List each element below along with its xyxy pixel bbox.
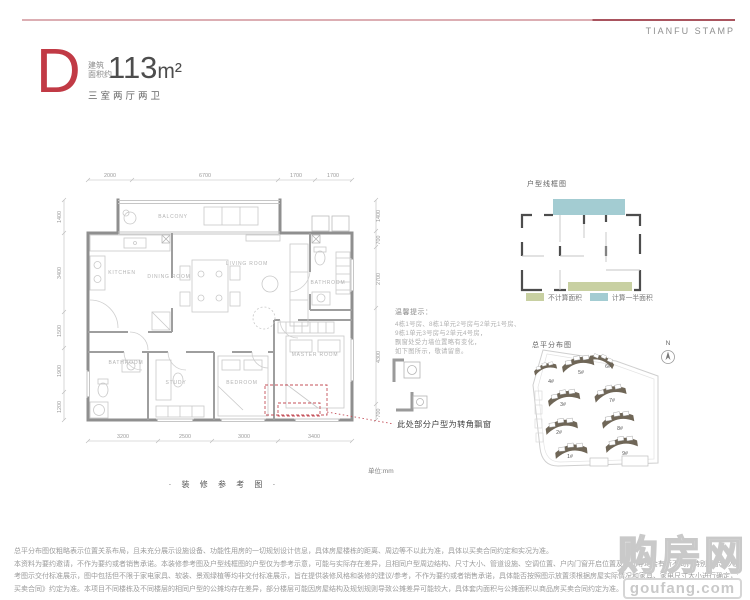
- legend-swatch-teal: [590, 293, 608, 301]
- svg-text:3#: 3#: [560, 402, 566, 408]
- svg-text:3400: 3400: [57, 267, 63, 279]
- layout-desc: 三室两厅两卫: [88, 88, 163, 102]
- svg-text:6#: 6#: [605, 364, 611, 370]
- tips-title: 温馨提示：: [395, 307, 433, 316]
- svg-text:700: 700: [376, 236, 382, 245]
- svg-text:1400: 1400: [376, 210, 382, 222]
- half-area-balcony: [553, 199, 625, 215]
- svg-text:700: 700: [376, 409, 382, 418]
- svg-text:5#: 5#: [578, 370, 584, 376]
- tips-line-2: 9栋1单元3号房与2单元4号房，: [395, 328, 487, 337]
- brand-rule: [22, 19, 735, 21]
- unit-type-letter: D: [36, 42, 81, 102]
- disclaimer-line-2: 本资料为要约邀请，不作为要约或者销售承诺。本装修参考图及户型线框图的户型仅为参考…: [14, 559, 738, 572]
- brand-logo: TIANFU STAMP: [646, 26, 735, 36]
- svg-text:N: N: [666, 340, 671, 347]
- no-count-area: [568, 282, 632, 291]
- legend-label-teal: 计算一半面积: [612, 293, 653, 302]
- wireframe-title: 户型线框图: [527, 179, 567, 188]
- svg-text:1700: 1700: [327, 173, 339, 179]
- unit-note: 单位:mm: [368, 466, 394, 475]
- room-label-kitchen: KITCHEN: [108, 270, 136, 276]
- tips-diagram-2: [396, 392, 427, 410]
- site-buildings: [533, 350, 638, 459]
- tips-block: 温馨提示： 4栋1号房、8栋1单元2号房与2单元1号房、 9栋1单元3号房与2单…: [394, 307, 521, 410]
- svg-text:4300: 4300: [376, 351, 382, 363]
- plan-caption: · 装 修 参 考 图 ·: [169, 479, 280, 489]
- svg-text:1900: 1900: [57, 365, 63, 377]
- bay-window-highlight: [265, 385, 394, 424]
- floor-plan-svg: 2000 6700 1700 1700 1400 3400 1500 1900 …: [28, 160, 530, 500]
- dimension-labels: 2000 6700 1700 1700 1400 3400 1500 1900 …: [57, 173, 382, 440]
- room-label-bedroom: BEDROOM: [226, 380, 257, 386]
- svg-text:1500: 1500: [57, 325, 63, 337]
- legend-swatch-green: [526, 293, 544, 301]
- wireframe-partitions: [522, 215, 640, 290]
- interior-walls: [88, 233, 352, 420]
- tips-line-3: 飘窗处受力墙位置略有变化，: [395, 337, 481, 346]
- svg-text:3400: 3400: [308, 434, 320, 440]
- siteplan-svg: 总平分布图 N: [518, 333, 693, 475]
- legend-label-green: 不计算面积: [548, 293, 582, 302]
- disclaimer-line-1: 总平分布图仅粗略表示位置关系布局，且未充分展示设施设备、功能性用房的一切规划设计…: [14, 546, 738, 559]
- svg-text:3200: 3200: [117, 434, 129, 440]
- svg-text:2000: 2000: [104, 173, 116, 179]
- tips-line-1: 4栋1号房、8栋1单元2号房与2单元1号房、: [395, 319, 521, 328]
- svg-text:1700: 1700: [290, 173, 302, 179]
- svg-text:3000: 3000: [238, 434, 250, 440]
- siteplan-title: 总平分布图: [532, 340, 572, 349]
- area-unit: m²: [157, 60, 182, 83]
- room-label-living: LIVING ROOM: [226, 261, 268, 267]
- shafts: [162, 235, 320, 243]
- svg-text:4#: 4#: [548, 379, 554, 385]
- svg-text:6700: 6700: [199, 173, 211, 179]
- svg-text:7#: 7#: [609, 398, 615, 404]
- disclaimer-line-3: 考图示交付标准展示，图中包括但不限于家电家具、软装、景观绿植等均非交付标准展示，…: [14, 571, 738, 584]
- svg-text:9#: 9#: [622, 451, 628, 457]
- svg-text:2500: 2500: [179, 434, 191, 440]
- svg-text:1400: 1400: [57, 211, 63, 223]
- corner-note-label: 此处部分户型为转角飘窗: [397, 419, 491, 429]
- disclaimer-line-4: 买卖合同》约定为准。本项目不同楼栋及不同楼层的相同户型的公摊均存在差异，部分楼层…: [14, 584, 738, 597]
- room-label-master: MASTER ROOM: [292, 352, 339, 358]
- disclaimer: 总平分布图仅粗略表示位置关系布局，且未充分展示设施设备、功能性用房的一切规划设计…: [14, 546, 738, 596]
- area-number: 113: [108, 50, 157, 85]
- area-value: 113m²: [108, 52, 182, 87]
- room-label-bathroom-1: BATHROOM: [311, 280, 346, 286]
- room-label-study: STUDY: [166, 380, 187, 386]
- tips-diagram-1: [394, 360, 420, 382]
- svg-text:8#: 8#: [617, 426, 623, 432]
- svg-text:1200: 1200: [57, 401, 63, 413]
- wireframe-svg: 户型线框图 不计算面积 计算一半面积: [500, 172, 660, 307]
- svg-text:1#: 1#: [567, 454, 573, 460]
- north-compass: N: [662, 340, 675, 364]
- room-label-dining: DINING ROOM: [147, 274, 190, 280]
- room-label-balcony: BALCONY: [158, 214, 188, 220]
- tips-line-4: 如下图所示，敬请留意。: [395, 346, 468, 355]
- room-label-bathroom-2: BATHROOM: [109, 360, 144, 366]
- svg-text:2700: 2700: [376, 273, 382, 285]
- wireframe-walls: [522, 215, 640, 290]
- page: TIANFU STAMP D 建筑 面积约 113m² 三室两厅两卫: [0, 0, 750, 600]
- svg-text:2#: 2#: [556, 430, 562, 436]
